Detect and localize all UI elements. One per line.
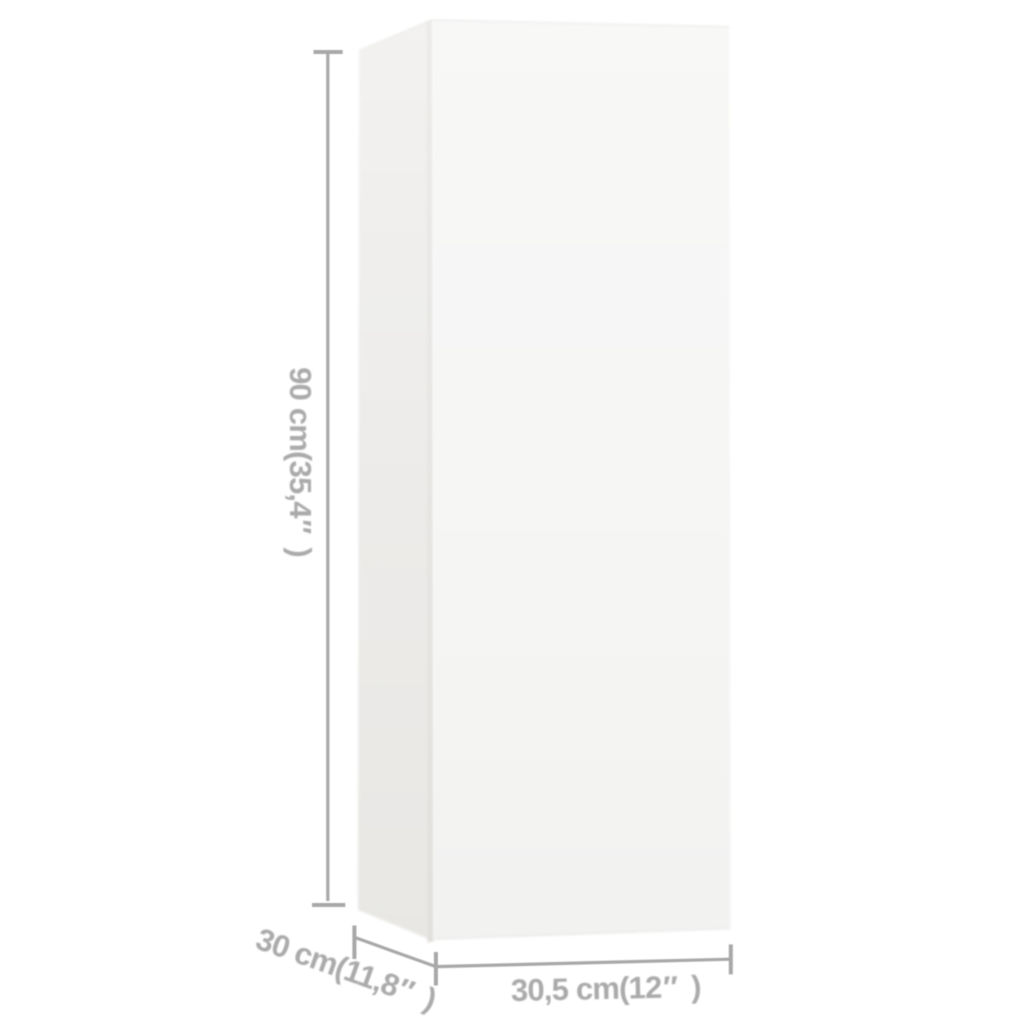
svg-text:90 cm(35,4″ ): 90 cm(35,4″ ) xyxy=(283,367,318,557)
svg-text:30,5 cm(12″ ): 30,5 cm(12″ ) xyxy=(511,969,701,1008)
svg-text:30 cm(11,8″ ): 30 cm(11,8″ ) xyxy=(252,921,441,1017)
